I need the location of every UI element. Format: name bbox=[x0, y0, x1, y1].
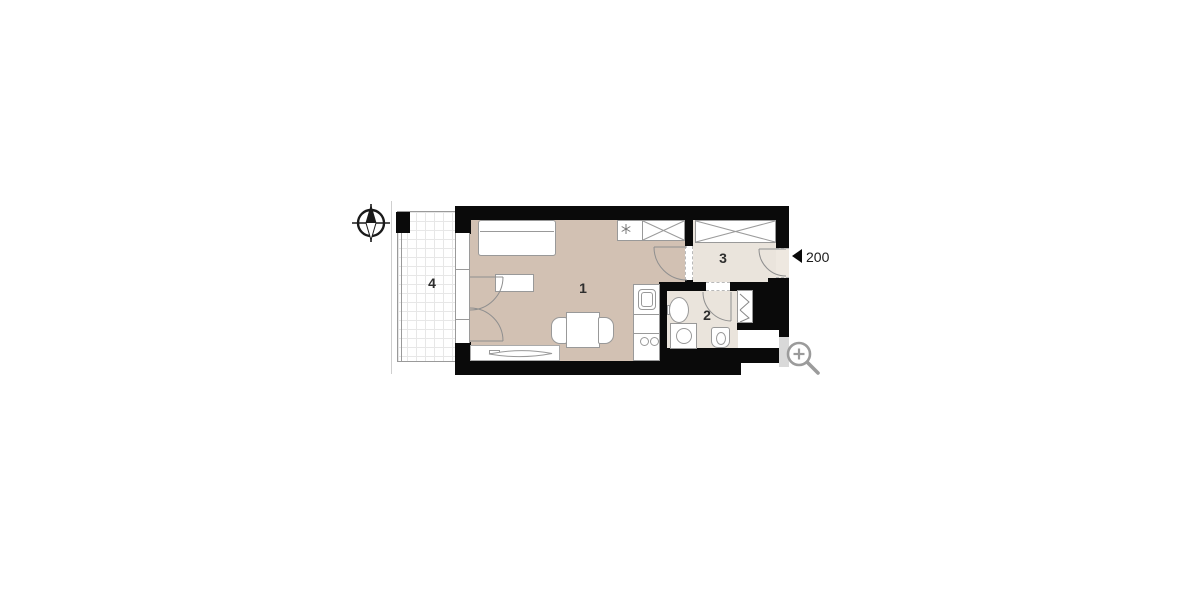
wall-segment-bathroom-top-left bbox=[667, 282, 706, 291]
window-divider bbox=[455, 269, 470, 270]
radiator-valve bbox=[489, 350, 500, 354]
counter-divider bbox=[634, 333, 659, 334]
wall-segment-top bbox=[455, 206, 789, 220]
entrance-number: 200 bbox=[806, 249, 829, 265]
room-label-1: 1 bbox=[574, 280, 592, 296]
zoom-icon[interactable] bbox=[788, 343, 818, 373]
bed bbox=[478, 220, 556, 256]
opening-room1-room3 bbox=[685, 246, 693, 280]
washing-machine-drum bbox=[676, 328, 692, 344]
chair-left bbox=[551, 317, 567, 344]
wall-segment-shaft-right bbox=[753, 290, 768, 323]
dining-table bbox=[566, 312, 600, 348]
counter-divider bbox=[634, 314, 659, 315]
cooktop-burner bbox=[650, 337, 659, 346]
bathroom-sink bbox=[669, 297, 689, 323]
window-sill-radiator-niche bbox=[470, 345, 560, 361]
adjacent-structure-line bbox=[391, 201, 392, 374]
chair-right bbox=[598, 317, 614, 344]
bed-pillow-line bbox=[480, 231, 554, 232]
wall-segment-bathroom-bottom-mass bbox=[657, 348, 741, 375]
wardrobe-divider bbox=[642, 220, 643, 241]
wall-segment-bottom bbox=[455, 361, 661, 375]
cooktop-burner bbox=[640, 337, 649, 346]
wall-segment-balcony-stub bbox=[396, 212, 410, 233]
wall-niche bbox=[740, 330, 779, 348]
compass-icon bbox=[352, 204, 390, 242]
window-divider bbox=[455, 319, 470, 320]
bathroom-sink-tap bbox=[667, 305, 670, 315]
coffee-table bbox=[495, 274, 534, 292]
wall-segment-room1-room3-upper bbox=[685, 220, 693, 246]
opening-entrance bbox=[776, 248, 789, 278]
wardrobe-hallway bbox=[695, 220, 776, 243]
room-label-3: 3 bbox=[714, 250, 732, 266]
wall-segment-under-shaft bbox=[737, 323, 780, 330]
opening-bathroom bbox=[706, 282, 730, 291]
wall-segment-left-top bbox=[455, 206, 471, 234]
floor-plan: 1 2 3 4 200 bbox=[0, 0, 1200, 600]
duct-shaft bbox=[737, 290, 753, 323]
balcony-railing-inner-line bbox=[401, 211, 402, 362]
balcony-window bbox=[455, 233, 470, 343]
wardrobe-room1 bbox=[617, 220, 685, 241]
kitchen-sink-basin bbox=[641, 292, 653, 307]
entrance-direction-triangle bbox=[792, 249, 802, 263]
toilet-bowl bbox=[716, 332, 726, 345]
room-label-4: 4 bbox=[423, 275, 441, 291]
wall-segment-right-upper bbox=[776, 206, 789, 248]
room-label-2: 2 bbox=[698, 307, 716, 323]
